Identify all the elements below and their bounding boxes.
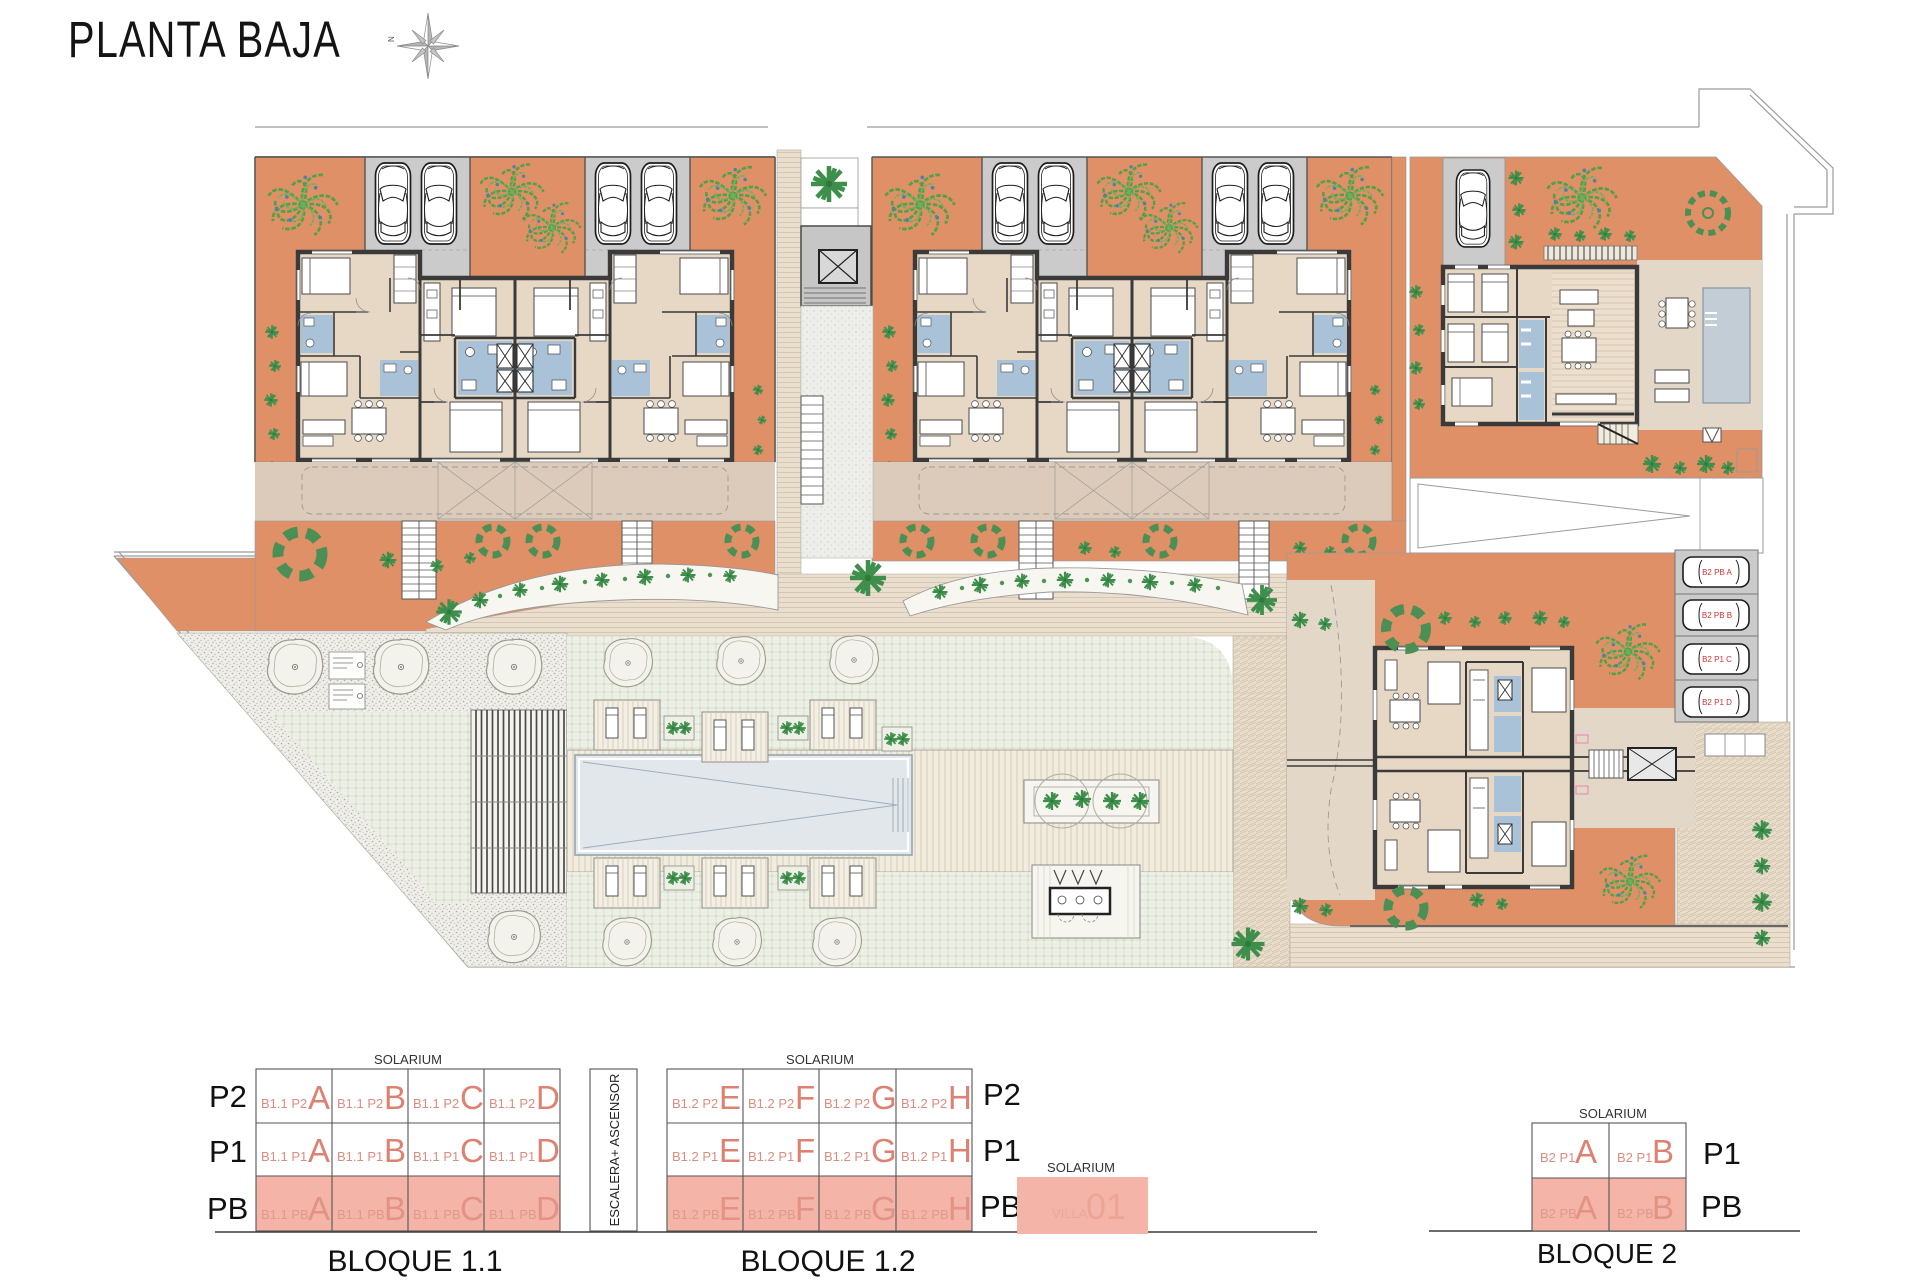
svg-text:A: A [308, 1190, 330, 1227]
svg-text:B1.1 PB: B1.1 PB [261, 1207, 309, 1222]
svg-text:B1.1 P1: B1.1 P1 [337, 1149, 383, 1164]
svg-text:B1.1 PB: B1.1 PB [337, 1207, 385, 1222]
svg-text:C: C [460, 1190, 484, 1227]
svg-text:BLOQUE 1.2: BLOQUE 1.2 [740, 1245, 915, 1278]
svg-text:B1.1 P1: B1.1 P1 [261, 1149, 307, 1164]
svg-text:B1.2 PB: B1.2 PB [748, 1207, 796, 1222]
svg-text:H: H [948, 1079, 972, 1116]
svg-text:B2 P1: B2 P1 [1617, 1150, 1652, 1165]
svg-text:B1.1 P2: B1.1 P2 [337, 1096, 383, 1111]
svg-text:BLOQUE 2: BLOQUE 2 [1537, 1238, 1677, 1269]
svg-text:B1.2 P1: B1.2 P1 [901, 1149, 947, 1164]
svg-text:B: B [384, 1132, 406, 1169]
svg-text:B1.2 P2: B1.2 P2 [672, 1096, 718, 1111]
svg-text:B1.1 P2: B1.1 P2 [489, 1096, 535, 1111]
svg-text:C: C [460, 1079, 484, 1116]
svg-text:B1.1 P1: B1.1 P1 [413, 1149, 459, 1164]
svg-text:N: N [387, 36, 396, 42]
svg-text:H: H [948, 1132, 972, 1169]
svg-text:B1.1 P1: B1.1 P1 [489, 1149, 535, 1164]
svg-text:P1: P1 [983, 1133, 1021, 1168]
svg-text:B2 P1 D: B2 P1 D [1702, 698, 1732, 707]
svg-text:B: B [384, 1190, 406, 1227]
svg-text:B: B [1652, 1189, 1674, 1226]
svg-text:B1.2 P1: B1.2 P1 [672, 1149, 718, 1164]
svg-text:A: A [1575, 1189, 1597, 1226]
svg-text:B2 PB: B2 PB [1617, 1206, 1654, 1221]
svg-text:P1: P1 [209, 1134, 247, 1169]
svg-text:SOLARIUM: SOLARIUM [1047, 1160, 1115, 1175]
svg-text:B1.2 PB: B1.2 PB [901, 1207, 949, 1222]
svg-text:SOLARIUM: SOLARIUM [786, 1052, 854, 1067]
svg-text:D: D [536, 1079, 560, 1116]
svg-text:A: A [308, 1132, 330, 1169]
svg-text:01: 01 [1086, 1186, 1126, 1227]
svg-text:B1.2 P2: B1.2 P2 [748, 1096, 794, 1111]
svg-text:B2 P1: B2 P1 [1540, 1150, 1575, 1165]
svg-text:BLOQUE 1.1: BLOQUE 1.1 [327, 1245, 502, 1278]
svg-text:P2: P2 [209, 1079, 247, 1114]
svg-text:PLANTA BAJA: PLANTA BAJA [68, 11, 341, 68]
svg-text:A: A [308, 1079, 330, 1116]
svg-text:G: G [871, 1132, 897, 1169]
svg-text:PB: PB [207, 1191, 248, 1226]
svg-text:D: D [536, 1132, 560, 1169]
svg-text:SOLARIUM: SOLARIUM [374, 1052, 442, 1067]
svg-text:PB: PB [980, 1189, 1021, 1224]
svg-text:E: E [719, 1190, 741, 1227]
svg-text:B1.1 PB: B1.1 PB [413, 1207, 461, 1222]
svg-text:B1.2 PB: B1.2 PB [672, 1207, 720, 1222]
svg-text:F: F [795, 1079, 815, 1116]
svg-text:B2 PB A: B2 PB A [1702, 568, 1732, 577]
svg-text:B2 PB B: B2 PB B [1702, 611, 1732, 620]
svg-text:A: A [1575, 1133, 1597, 1170]
svg-text:E: E [719, 1132, 741, 1169]
svg-text:VILLA: VILLA [1052, 1206, 1088, 1221]
svg-text:H: H [948, 1190, 972, 1227]
svg-text:PB: PB [1701, 1189, 1742, 1224]
svg-text:B1.2 P2: B1.2 P2 [824, 1096, 870, 1111]
svg-text:B2 PB: B2 PB [1540, 1206, 1577, 1221]
svg-text:B1.1 P2: B1.1 P2 [413, 1096, 459, 1111]
svg-text:G: G [871, 1190, 897, 1227]
svg-text:B1.1 P2: B1.1 P2 [261, 1096, 307, 1111]
svg-text:P2: P2 [983, 1077, 1021, 1112]
svg-text:E: E [719, 1079, 741, 1116]
svg-text:B1.2 P2: B1.2 P2 [901, 1096, 947, 1111]
svg-text:B1.1 PB: B1.1 PB [489, 1207, 537, 1222]
svg-text:F: F [795, 1190, 815, 1227]
svg-text:B: B [384, 1079, 406, 1116]
svg-text:B1.2 P1: B1.2 P1 [748, 1149, 794, 1164]
svg-text:B1.2 PB: B1.2 PB [824, 1207, 872, 1222]
svg-text:B: B [1652, 1133, 1674, 1170]
svg-text:B1.2 P1: B1.2 P1 [824, 1149, 870, 1164]
svg-text:P1: P1 [1703, 1136, 1741, 1171]
svg-text:D: D [536, 1190, 560, 1227]
svg-text:ESCALERA+ ASCENSOR: ESCALERA+ ASCENSOR [607, 1074, 622, 1227]
svg-text:SOLARIUM: SOLARIUM [1579, 1106, 1647, 1121]
svg-text:F: F [795, 1132, 815, 1169]
svg-text:G: G [871, 1079, 897, 1116]
svg-text:C: C [460, 1132, 484, 1169]
svg-text:B2 P1 C: B2 P1 C [1702, 655, 1732, 664]
